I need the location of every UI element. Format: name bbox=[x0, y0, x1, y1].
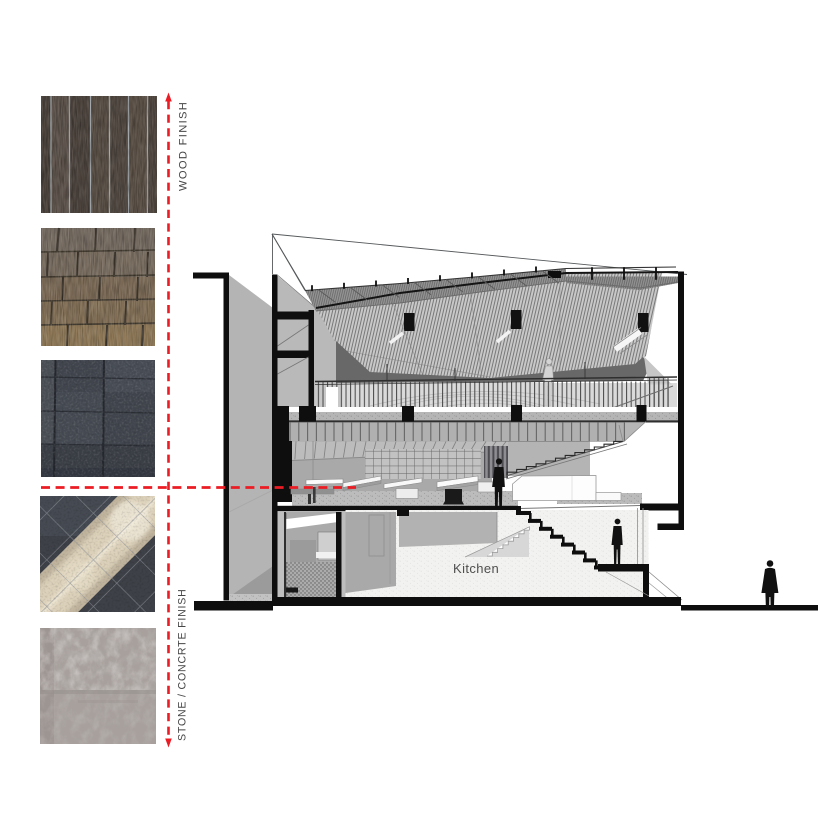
svg-text:WOOD FINISH: WOOD FINISH bbox=[178, 101, 190, 191]
svg-text:STONE / CONCRTE FINISH: STONE / CONCRTE FINISH bbox=[177, 588, 189, 741]
svg-text:Kitchen: Kitchen bbox=[453, 561, 499, 576]
